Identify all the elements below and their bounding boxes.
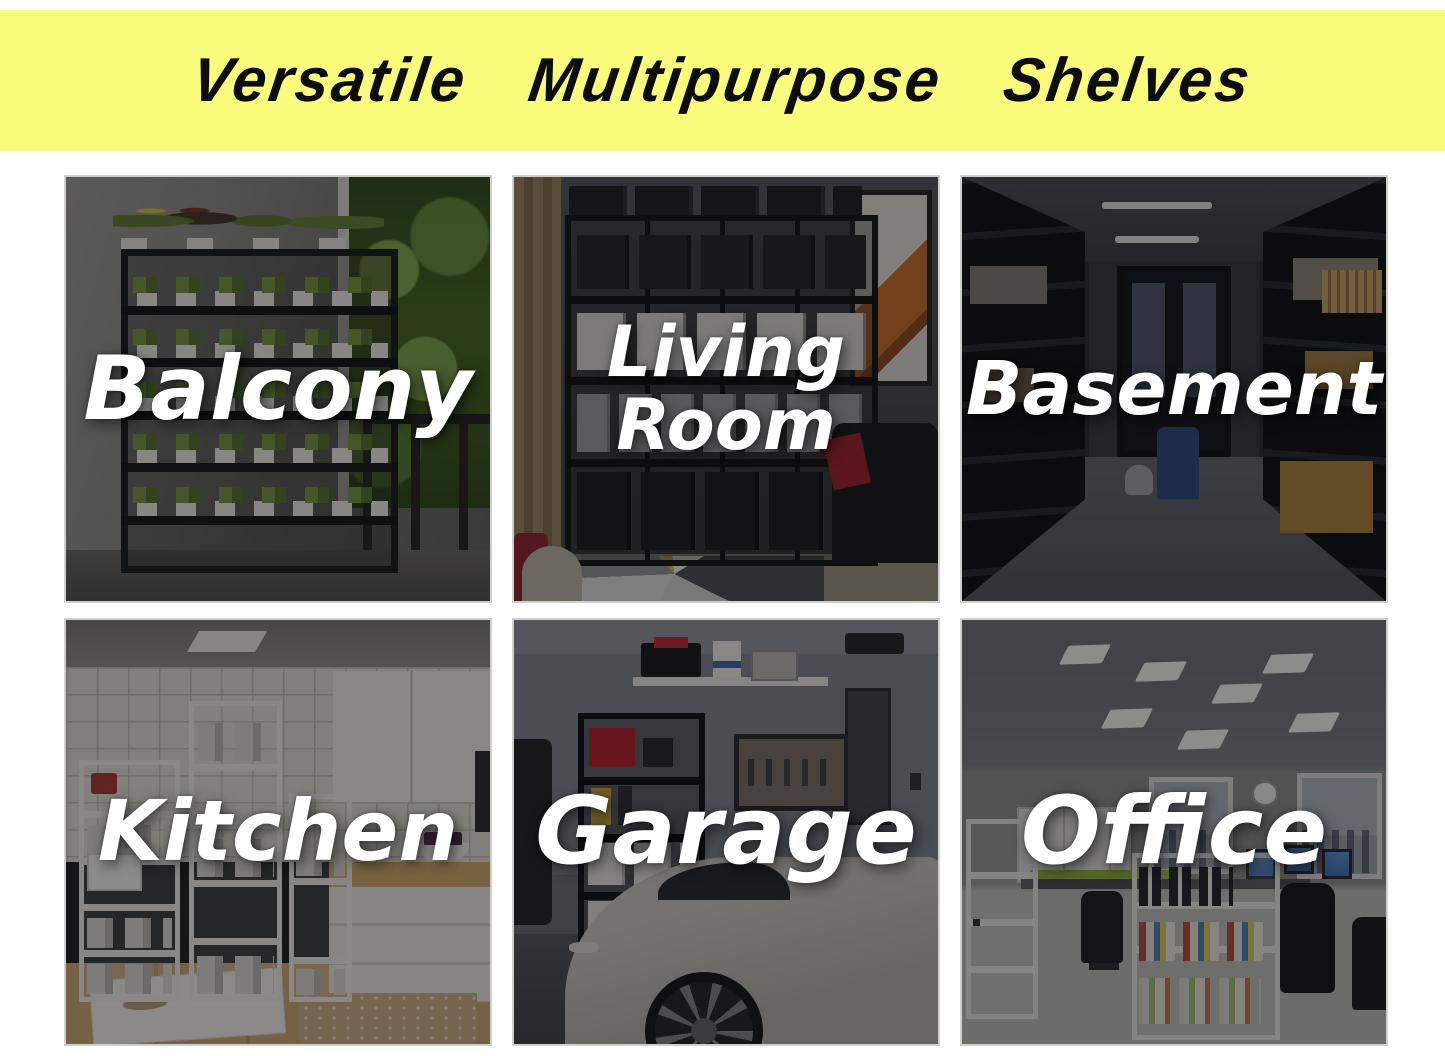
panel-garage: Garage — [512, 618, 940, 1046]
panel-label-text: Kitchen — [98, 788, 458, 875]
panel-label-kitchen: Kitchen — [66, 620, 490, 1044]
panel-label-garage: Garage — [514, 620, 938, 1044]
panel-label-text: Balcony — [83, 343, 472, 435]
panel-basement: Basement — [960, 175, 1388, 603]
panel-living-room: Living Room — [512, 175, 940, 603]
panel-label-living-room: Living Room — [514, 177, 938, 601]
panel-balcony: Balcony — [64, 175, 492, 603]
title-banner: Versatile Multipurpose Shelves — [0, 10, 1445, 151]
panel-grid: Balcony — [64, 175, 1388, 1046]
panel-label-text: Garage — [535, 783, 916, 881]
panel-label-balcony: Balcony — [66, 177, 490, 601]
panel-office: Office — [960, 618, 1388, 1046]
page-title: Versatile Multipurpose Shelves — [188, 45, 1257, 116]
panel-label-text: Living Room — [590, 316, 861, 462]
panel-label-text: Office — [1021, 783, 1327, 881]
panel-label-text: Basement — [966, 351, 1382, 428]
panel-label-basement: Basement — [962, 177, 1386, 601]
product-marketing-image: Versatile Multipurpose Shelves — [0, 0, 1445, 1056]
panel-kitchen: Kitchen — [64, 618, 492, 1046]
panel-label-office: Office — [962, 620, 1386, 1044]
